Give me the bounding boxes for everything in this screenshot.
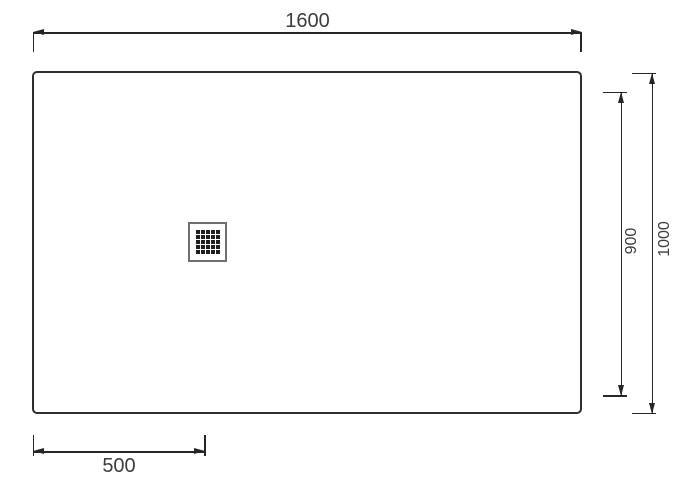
dim-width-arrow-left-icon — [33, 29, 44, 35]
grate-dot — [206, 240, 210, 244]
dim-inner-height-label: 900 — [622, 211, 642, 271]
grate-dot — [216, 240, 220, 244]
grate-dot — [206, 245, 210, 249]
dim-width-label: 1600 — [33, 11, 582, 31]
grate-dot — [206, 230, 210, 234]
technical-drawing-canvas: 1600 900 1000 500 — [0, 0, 686, 484]
grate-dot — [211, 240, 215, 244]
dim-drain-offset-label: 500 — [33, 456, 205, 476]
dim-width-extension-left — [33, 33, 35, 52]
grate-dot — [211, 235, 215, 239]
dim-drain-offset-arrow-left-icon — [33, 448, 44, 454]
grate-dot — [206, 235, 210, 239]
dim-overall-height-arrow-up-icon — [649, 73, 655, 84]
grate-dot — [201, 230, 205, 234]
grate-dot — [201, 245, 205, 249]
grate-dot — [201, 250, 205, 254]
grate-dot — [196, 230, 200, 234]
dim-inner-height-arrow-up-icon — [618, 92, 624, 103]
drain-grate-icon — [188, 222, 227, 262]
grate-dot — [216, 235, 220, 239]
grate-dot — [201, 235, 205, 239]
shower-tray-outline — [32, 71, 582, 414]
grate-dot — [196, 240, 200, 244]
grate-dot — [211, 230, 215, 234]
dim-width-line — [33, 32, 582, 34]
grate-dot — [216, 250, 220, 254]
dim-overall-height-extension-bottom — [632, 413, 656, 415]
grate-dot — [211, 245, 215, 249]
dim-width-extension-right — [580, 33, 582, 52]
dim-overall-height-line — [652, 73, 654, 414]
dim-inner-height-extension-top — [603, 92, 627, 94]
grate-dot — [196, 250, 200, 254]
grate-dot — [216, 245, 220, 249]
dim-inner-height-extension-bottom — [603, 395, 627, 397]
dim-overall-height-label: 1000 — [655, 204, 675, 274]
grate-dot — [196, 245, 200, 249]
dim-overall-height-extension-top — [632, 73, 656, 75]
dim-drain-offset-line — [33, 451, 205, 453]
grate-dot — [216, 230, 220, 234]
grate-dot — [201, 240, 205, 244]
dim-drain-offset-arrow-right-icon — [194, 448, 205, 454]
grate-dot — [206, 250, 210, 254]
grate-dot — [196, 235, 200, 239]
drain-grate-grid — [196, 230, 220, 254]
grate-dot — [211, 250, 215, 254]
